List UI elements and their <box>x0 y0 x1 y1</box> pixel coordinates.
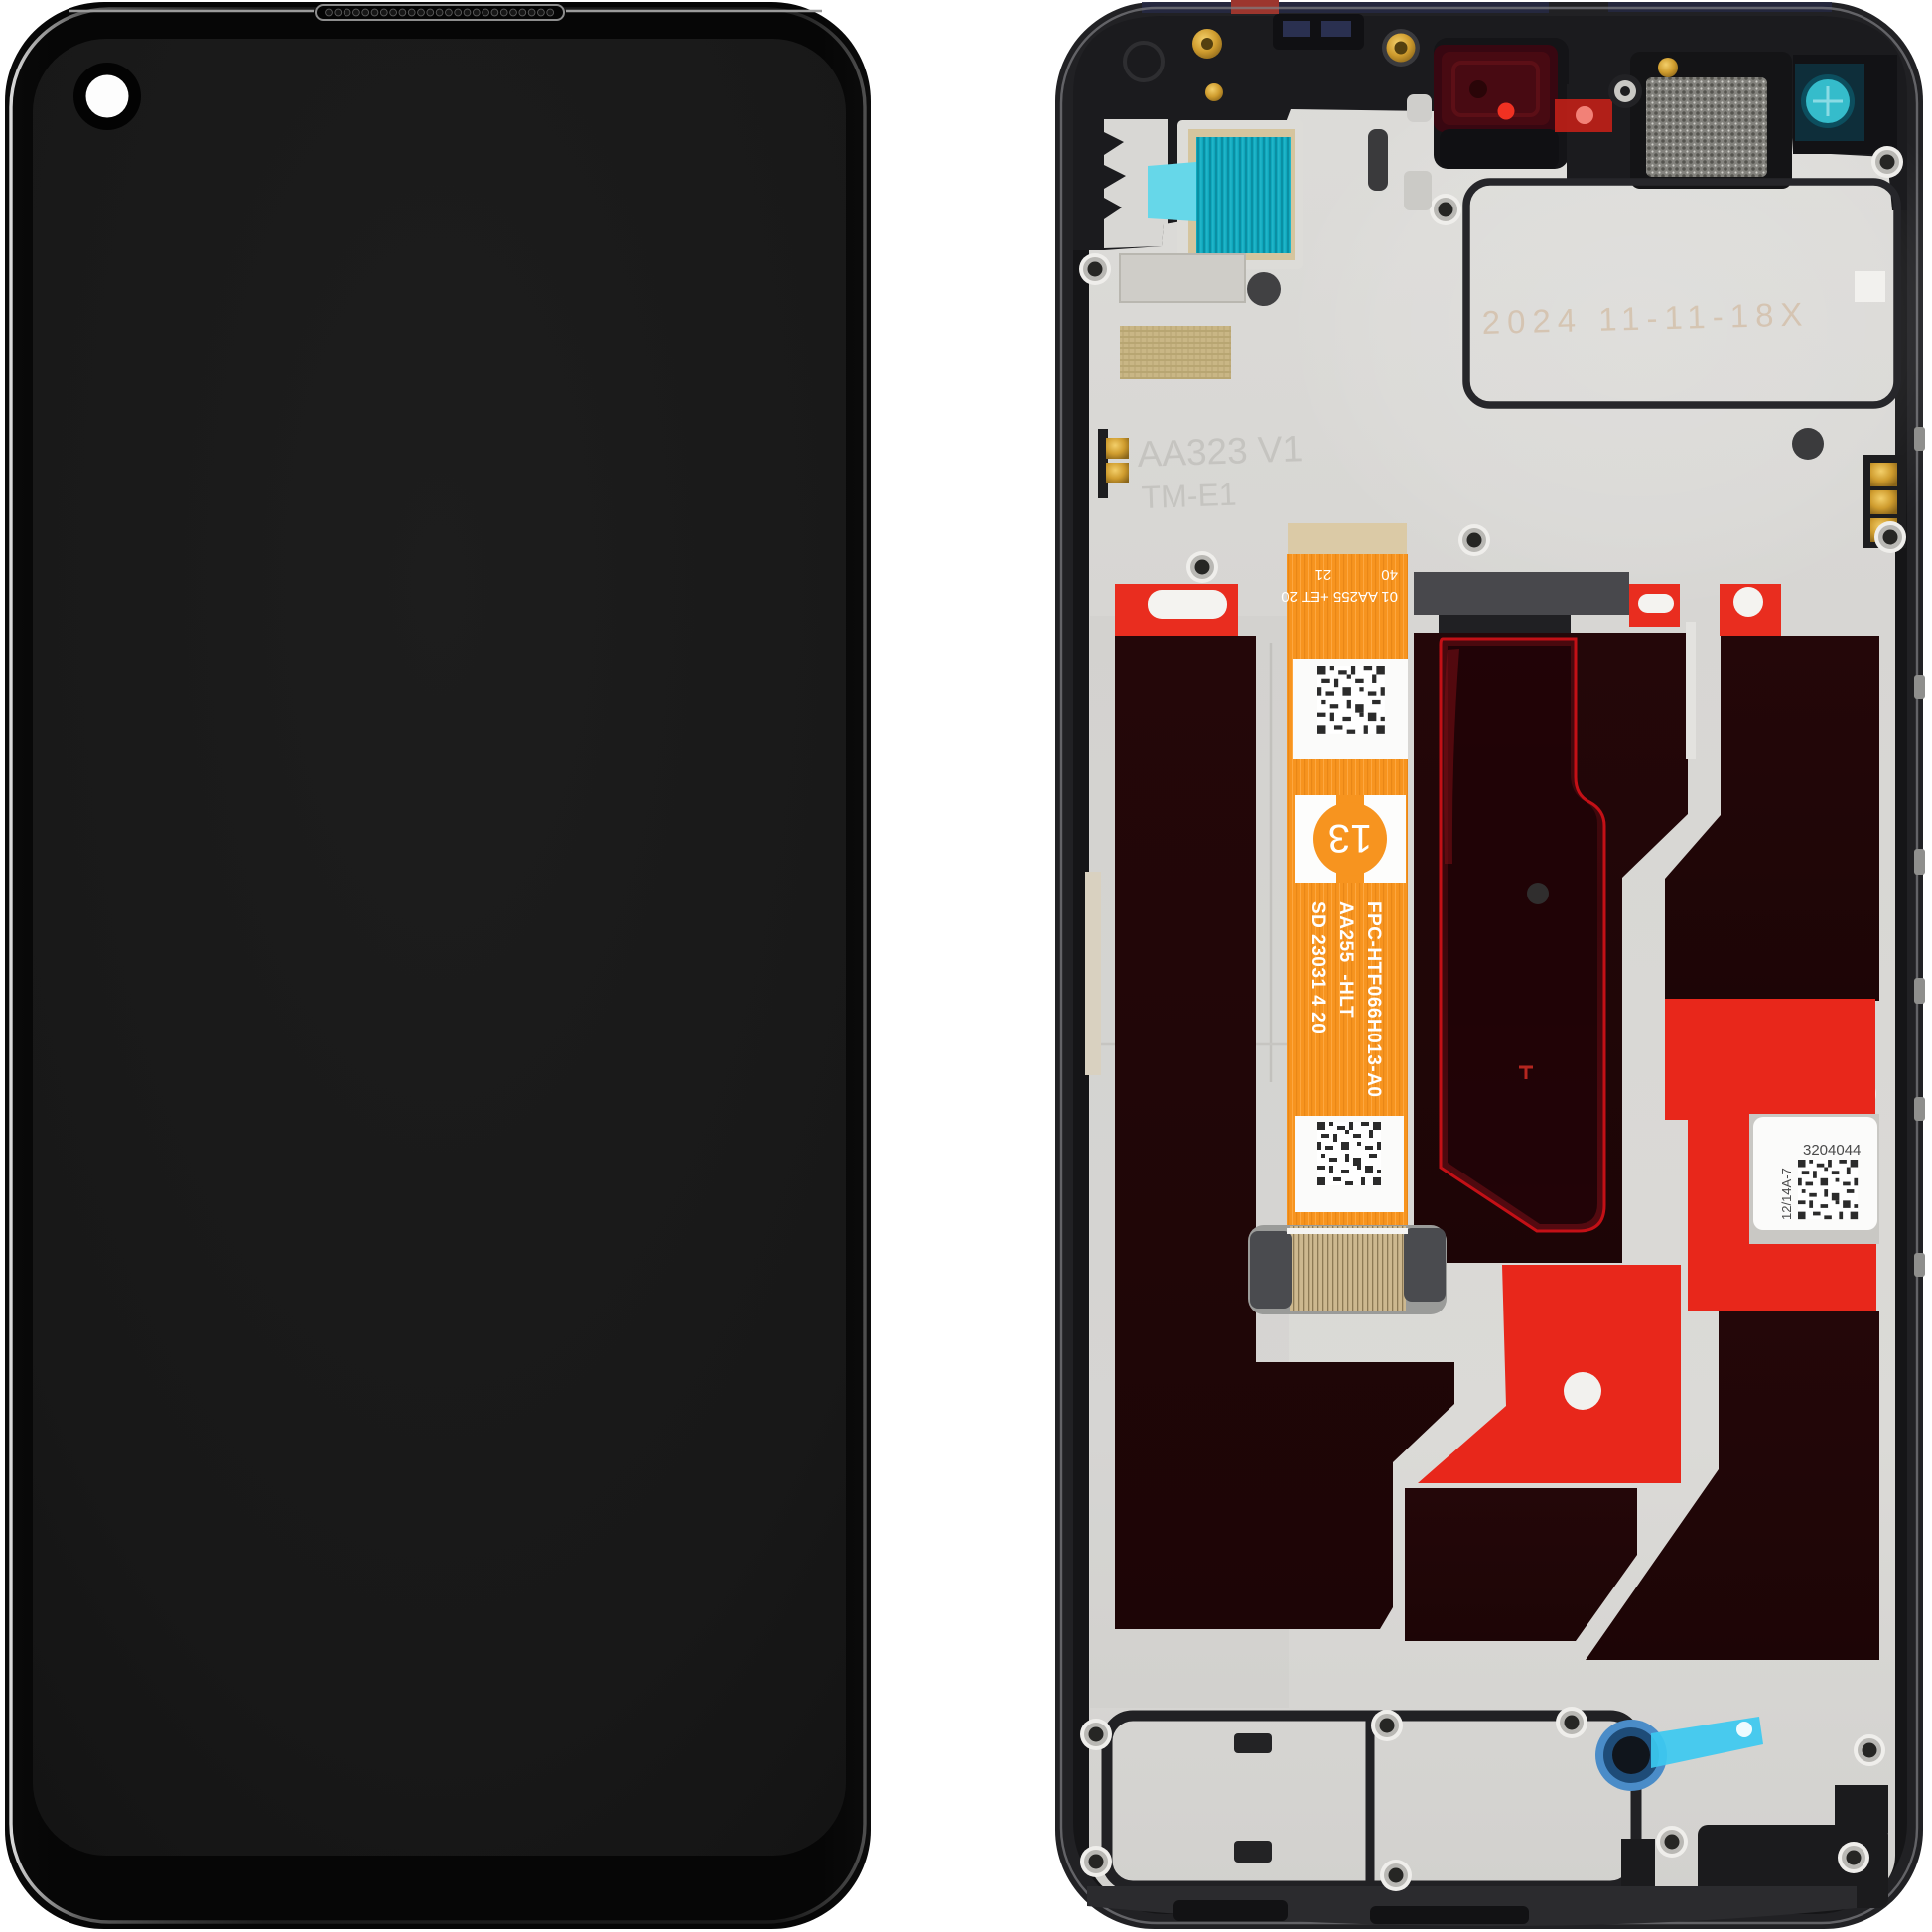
svg-text:40 21: 40 21 <box>1315 566 1398 583</box>
svg-text:AA323 V1: AA323 V1 <box>1137 428 1304 475</box>
svg-text:01 AA255 +ET 20: 01 AA255 +ET 20 <box>1281 588 1398 605</box>
svg-text:TM-E1: TM-E1 <box>1141 477 1237 515</box>
svg-text:12/14A-7: 12/14A-7 <box>1779 1168 1794 1220</box>
svg-text:AA255 -HLT: AA255 -HLT <box>1335 901 1356 1018</box>
svg-text:SD 23031 4 20: SD 23031 4 20 <box>1308 901 1328 1034</box>
svg-text:3204044: 3204044 <box>1803 1142 1861 1159</box>
svg-text:13: 13 <box>1328 816 1373 860</box>
svg-text:FPC-HTF066H013-A0: FPC-HTF066H013-A0 <box>1363 901 1384 1098</box>
